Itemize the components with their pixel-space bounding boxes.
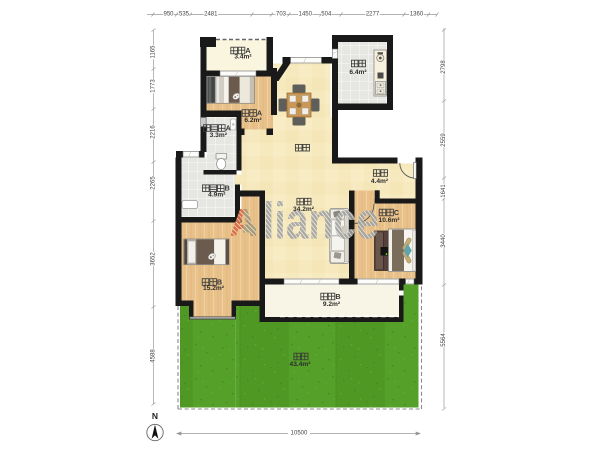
svg-text:1450: 1450 xyxy=(299,12,313,18)
svg-text:2798: 2798 xyxy=(441,60,447,74)
svg-text:N: N xyxy=(152,411,158,421)
svg-text:43.4m²: 43.4m² xyxy=(290,361,312,368)
svg-text:1773: 1773 xyxy=(151,79,157,93)
svg-text:1360: 1360 xyxy=(410,12,424,18)
svg-text:4588: 4588 xyxy=(151,349,157,363)
svg-text:2481: 2481 xyxy=(204,12,218,18)
svg-text:2216: 2216 xyxy=(151,125,157,139)
svg-text:5564: 5564 xyxy=(441,333,447,347)
svg-text:2559: 2559 xyxy=(441,133,447,147)
svg-text:3.4m²: 3.4m² xyxy=(234,53,252,60)
svg-text:3440: 3440 xyxy=(441,234,447,248)
svg-text:535: 535 xyxy=(179,12,190,18)
svg-text:4.9m²: 4.9m² xyxy=(208,192,226,199)
svg-text:1641: 1641 xyxy=(441,184,447,198)
svg-text:B: B xyxy=(335,292,340,301)
svg-text:703: 703 xyxy=(276,12,287,18)
svg-text:10.6m²: 10.6m² xyxy=(379,217,401,224)
svg-text:10500: 10500 xyxy=(291,431,308,437)
svg-text:4.4m²: 4.4m² xyxy=(371,178,389,185)
svg-text:6.4m²: 6.4m² xyxy=(349,69,367,76)
svg-text:6.2m²: 6.2m² xyxy=(244,117,262,124)
svg-text:3652: 3652 xyxy=(151,252,157,266)
svg-text:liance: liance xyxy=(263,192,379,250)
svg-text:1165: 1165 xyxy=(151,45,157,59)
svg-text:2265: 2265 xyxy=(151,176,157,190)
svg-text:2277: 2277 xyxy=(366,12,380,18)
svg-text:950: 950 xyxy=(163,12,174,18)
svg-text:15.2m²: 15.2m² xyxy=(203,285,225,292)
svg-text:504: 504 xyxy=(321,12,332,18)
svg-text:C: C xyxy=(394,208,399,217)
svg-text:3.3m²: 3.3m² xyxy=(210,132,228,139)
svg-text:9.2m²: 9.2m² xyxy=(323,301,341,308)
svg-text:34.2m²: 34.2m² xyxy=(293,206,315,213)
